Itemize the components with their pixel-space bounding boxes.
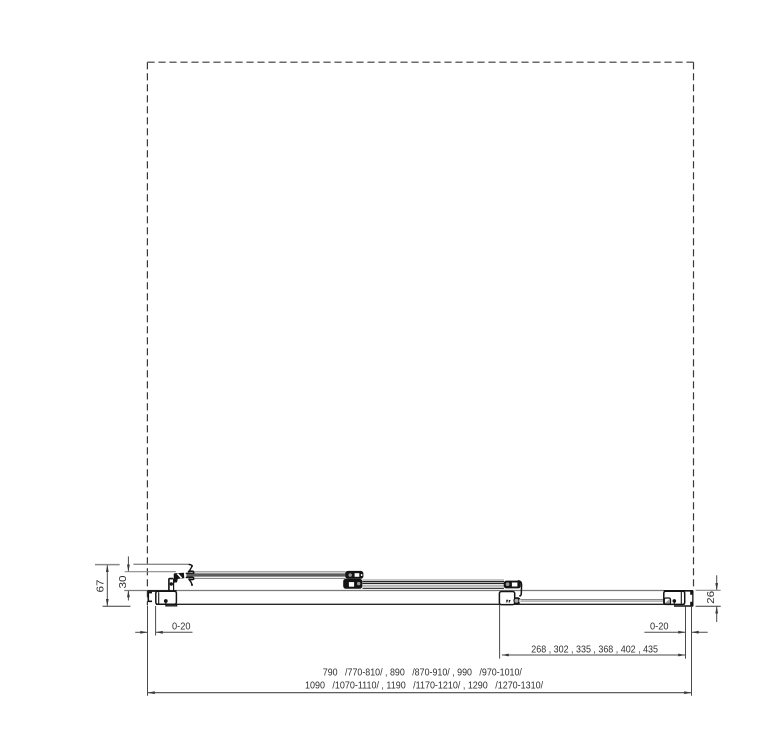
svg-text:0-20: 0-20 [650, 622, 669, 633]
svg-text:790 /770-810/ , 890 /870-9: 790 /770-810/ , 890 /870-910/ , 990 /970… [323, 667, 522, 679]
svg-text:30: 30 [117, 575, 129, 588]
svg-text:26: 26 [705, 591, 717, 604]
svg-text:0-20: 0-20 [172, 622, 191, 633]
svg-text:67: 67 [95, 579, 107, 592]
svg-text:1090 /1070-1110/ , 1190 /1: 1090 /1070-1110/ , 1190 /1170-1210/ , 12… [305, 680, 543, 692]
svg-text:268 , 302 , 335 , 368 , 402 ,: 268 , 302 , 335 , 368 , 402 , 435 [531, 643, 658, 655]
